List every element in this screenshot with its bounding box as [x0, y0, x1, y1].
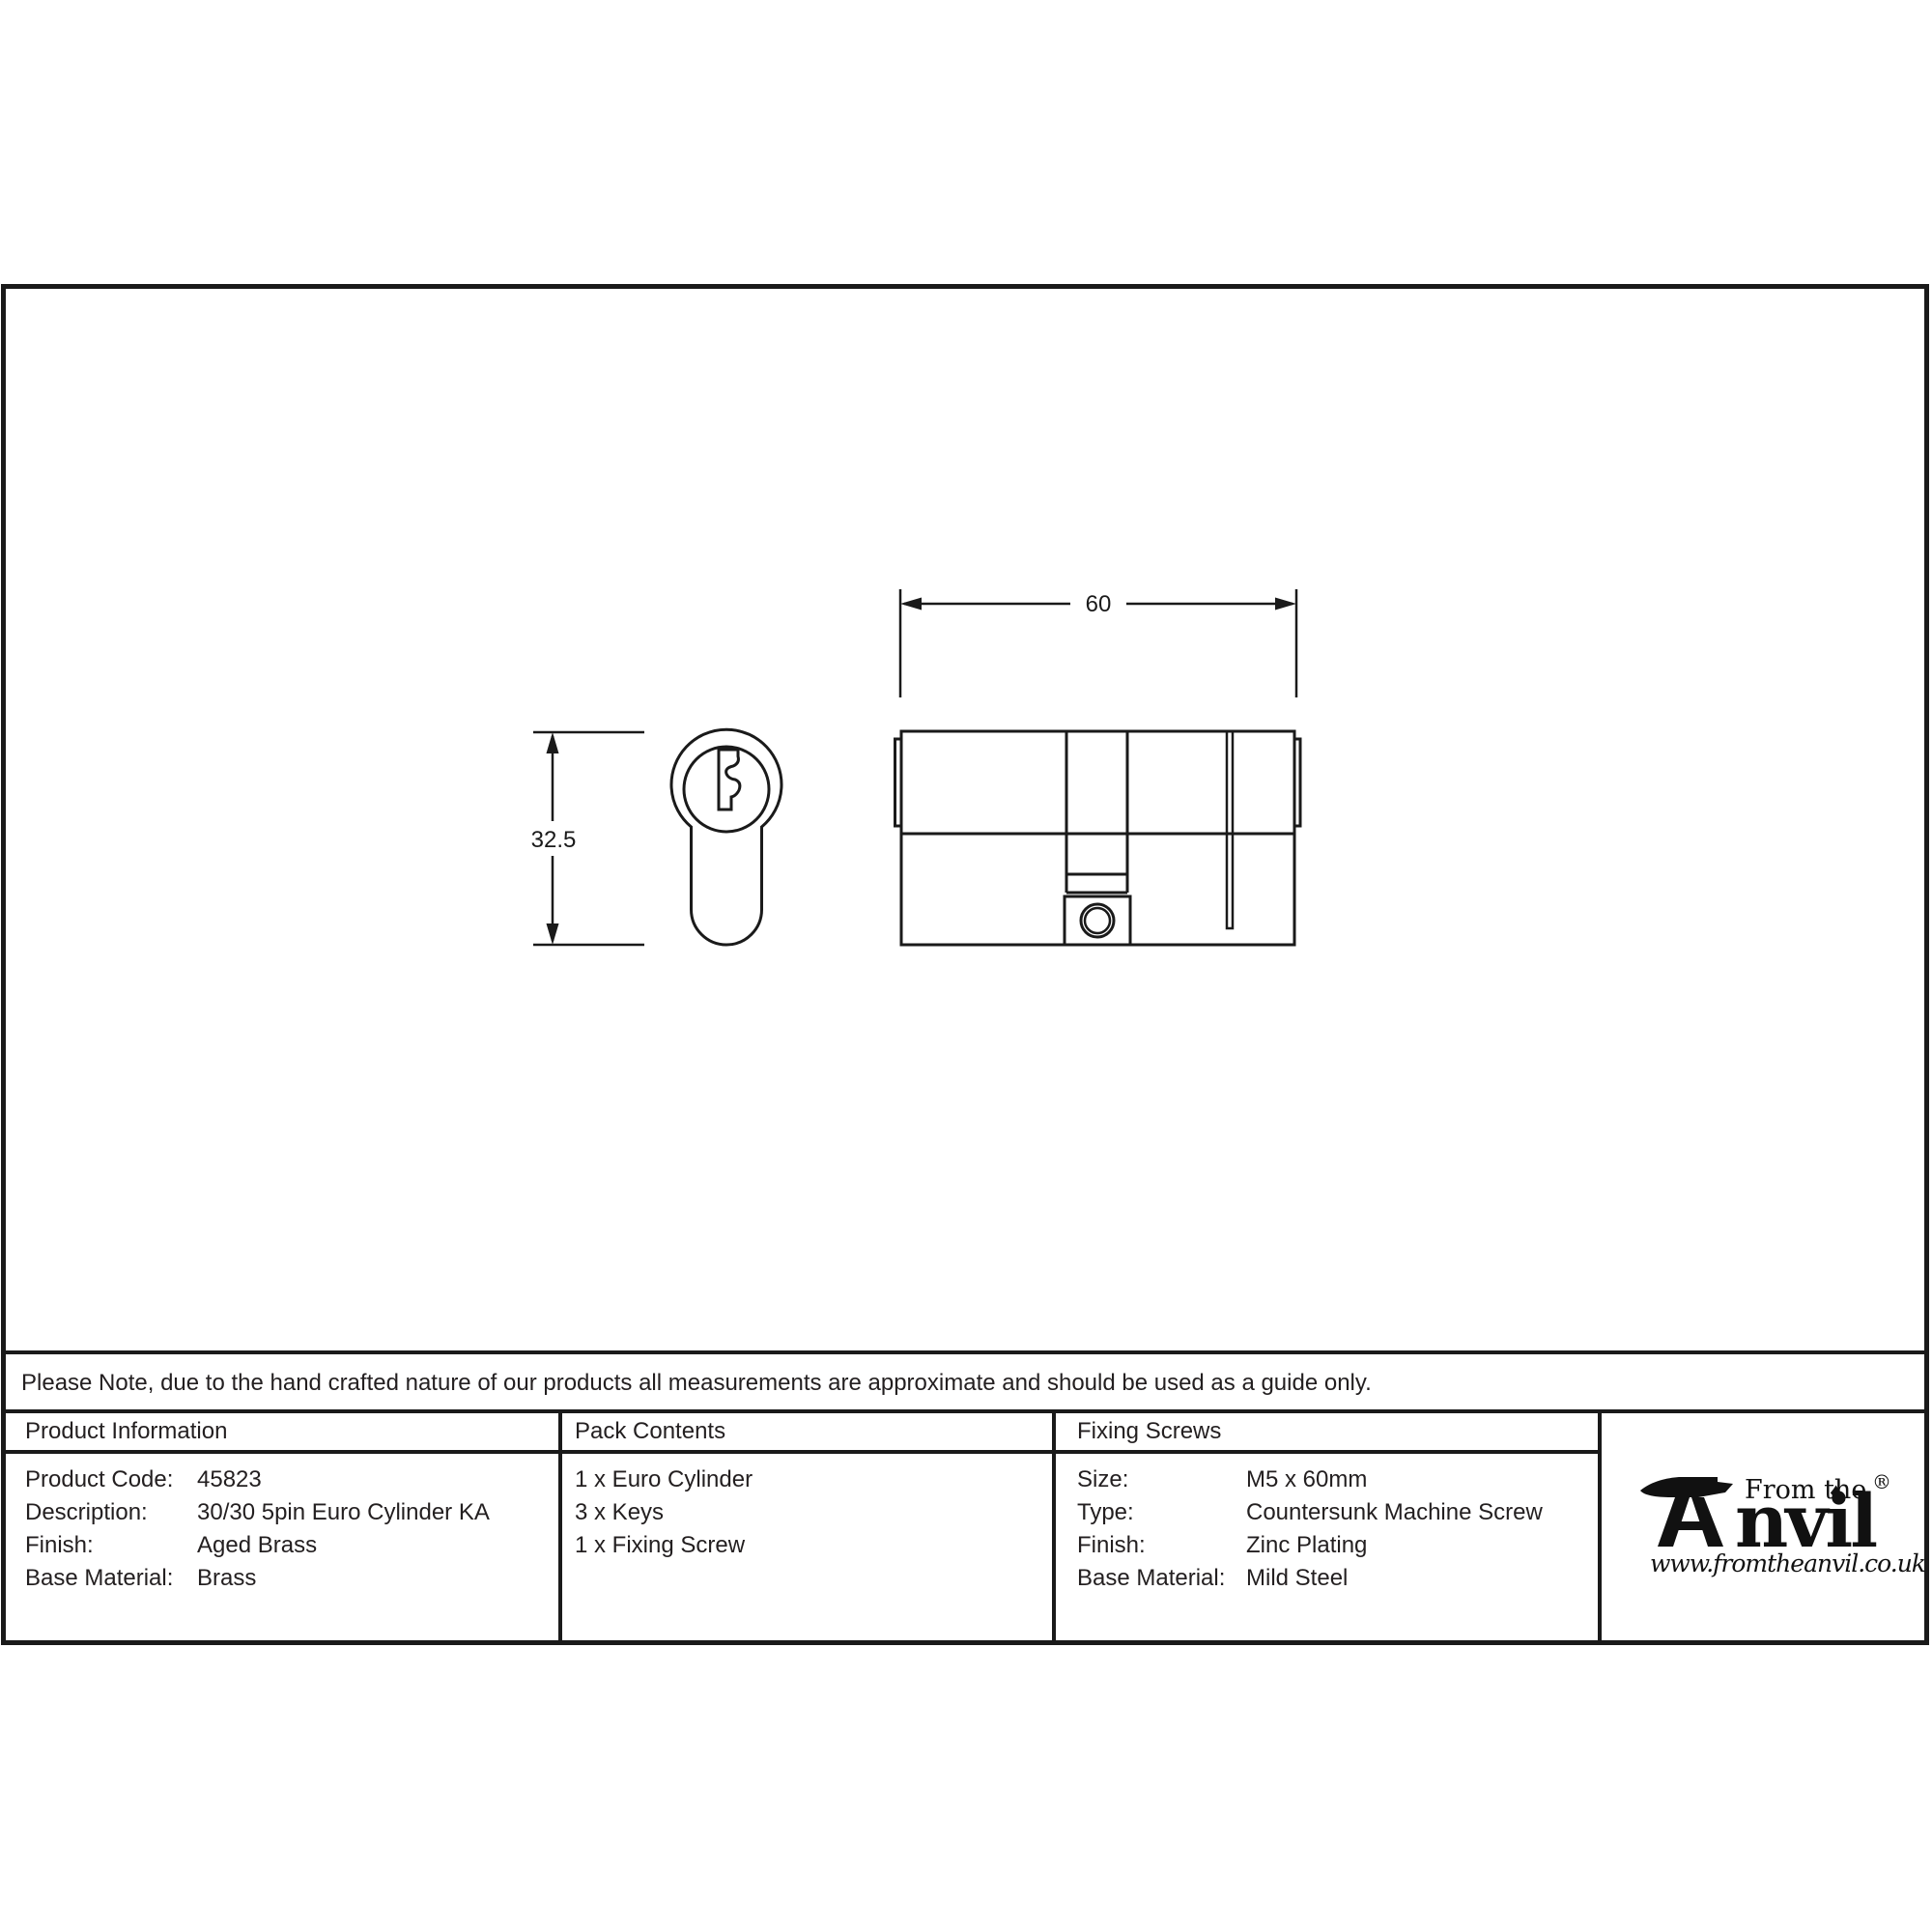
description-value: 30/30 5pin Euro Cylinder KA	[197, 1499, 490, 1526]
pack-contents-header: Pack Contents	[575, 1418, 725, 1445]
screw-type-label: Type:	[1077, 1499, 1134, 1526]
screw-size-value: M5 x 60mm	[1246, 1466, 1367, 1493]
screw-finish-label: Finish:	[1077, 1532, 1146, 1559]
divider-product-pack	[558, 1409, 562, 1644]
screw-material-label: Base Material:	[1077, 1565, 1225, 1592]
screw-type-value: Countersunk Machine Screw	[1246, 1499, 1543, 1526]
screw-size-label: Size:	[1077, 1466, 1128, 1493]
registered-mark-icon: ®	[1872, 1470, 1891, 1493]
pack-item: 1 x Euro Cylinder	[575, 1466, 753, 1493]
logo-website: www.fromtheanvil.co.uk	[1650, 1549, 1925, 1577]
spec-sheet: 60 32.5 Please Note, due to the hand cra…	[0, 0, 1932, 1932]
logo-anvil-word: nvil	[1735, 1485, 1875, 1558]
note-row-top-line	[2, 1350, 1928, 1354]
screw-material-value: Mild Steel	[1246, 1565, 1348, 1592]
measurement-note: Please Note, due to the hand crafted nat…	[21, 1370, 1372, 1397]
divider-pack-fixing	[1052, 1409, 1056, 1644]
base-material-label: Base Material:	[25, 1565, 173, 1592]
screw-finish-value: Zinc Plating	[1246, 1532, 1367, 1559]
description-label: Description:	[25, 1499, 148, 1526]
brand-logo: From the ♦ nvil ® www.fromtheanvil.co.uk	[1598, 1411, 1928, 1644]
anvil-icon	[1638, 1469, 1739, 1548]
header-row-bottom-line	[2, 1450, 1602, 1454]
pack-item: 3 x Keys	[575, 1499, 664, 1526]
product-code-label: Product Code:	[25, 1466, 173, 1493]
finish-label: Finish:	[25, 1532, 94, 1559]
product-information-header: Product Information	[25, 1418, 227, 1445]
product-code-value: 45823	[197, 1466, 262, 1493]
finish-value: Aged Brass	[197, 1532, 317, 1559]
fixing-screws-header: Fixing Screws	[1077, 1418, 1221, 1445]
base-material-value: Brass	[197, 1565, 256, 1592]
pack-item: 1 x Fixing Screw	[575, 1532, 745, 1559]
